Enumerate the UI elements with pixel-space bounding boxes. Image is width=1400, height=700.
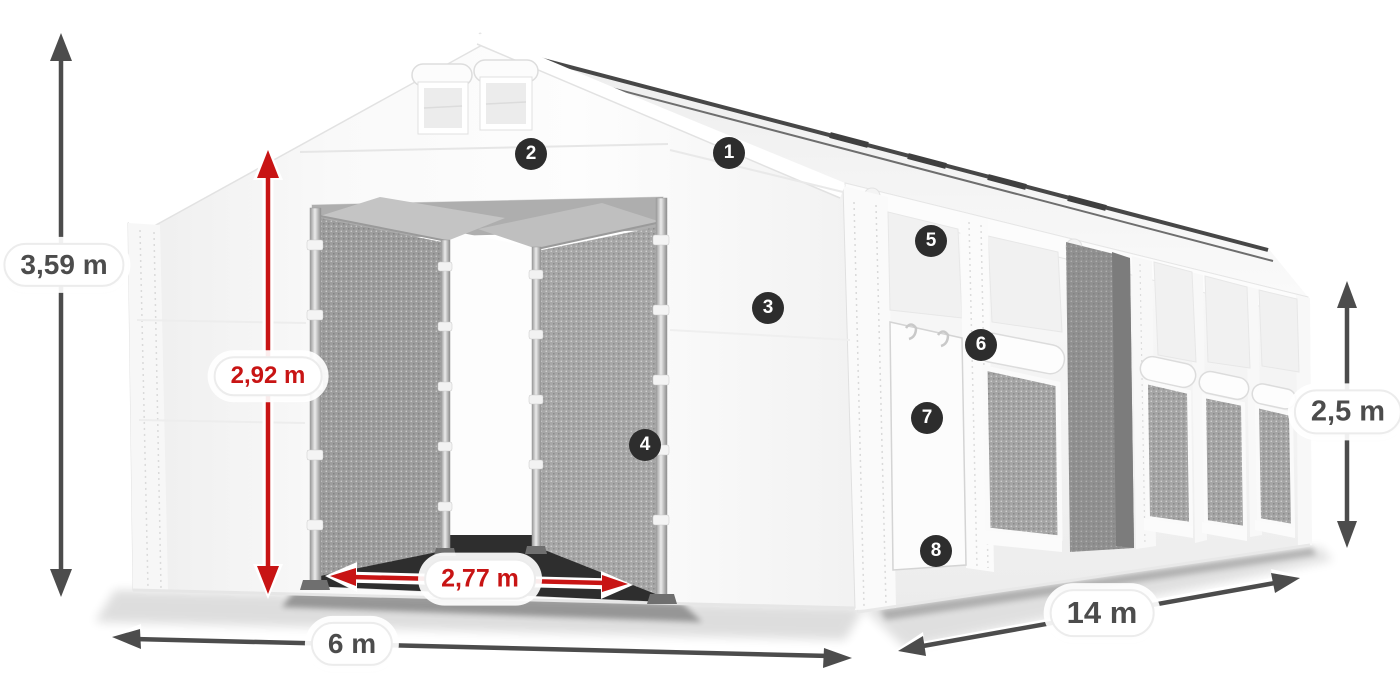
dimension-label-entrance-height: 2,92 m [214,356,323,396]
side-window [1250,382,1297,538]
gable-window [474,60,538,130]
gable-window [412,64,472,134]
dimension-label-length: 14 m [1050,589,1155,637]
dimension-label-side-height: 2,5 m [1294,389,1400,434]
feature-marker-6: 6 [965,329,997,361]
feature-marker-3: 3 [752,292,784,324]
feature-marker-1: 1 [713,137,745,169]
dimension-label-width: 6 m [311,622,393,666]
side-window [1197,369,1250,541]
dimension-label-entrance-width: 2,77 m [424,559,536,600]
tent-dimension-diagram: 3,59 m 2,92 m 2,77 m 6 m 14 m 2,5 m 1 2 … [0,0,1400,700]
feature-marker-4: 4 [629,429,661,461]
side-window [1138,354,1198,538]
entrance [300,197,677,604]
total-height-arrow [46,27,76,603]
entrance-pole-right [656,198,667,602]
side-upper-panel [988,236,1062,332]
tent-illustration [0,0,1400,700]
dimension-label-total-height: 3,59 m [3,243,124,287]
feature-marker-2: 2 [515,138,547,170]
feature-marker-8: 8 [920,535,952,567]
feature-marker-7: 7 [911,402,943,434]
side-door [890,322,966,570]
side-opening [1066,242,1134,552]
feature-marker-5: 5 [915,225,947,257]
